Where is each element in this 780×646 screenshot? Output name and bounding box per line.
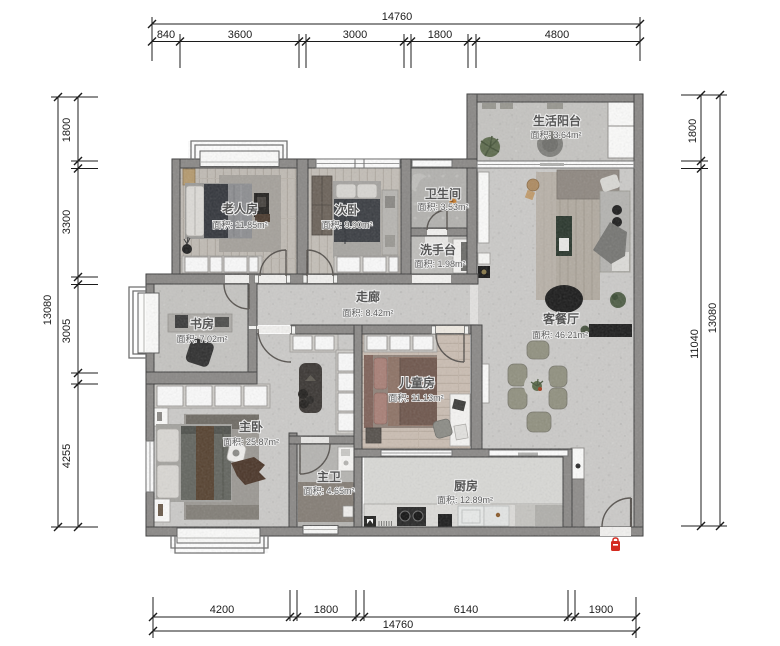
svg-text:13080: 13080 xyxy=(707,303,719,334)
svg-text:4800: 4800 xyxy=(545,29,569,41)
svg-text:3300: 3300 xyxy=(61,210,73,234)
svg-text:14760: 14760 xyxy=(383,619,414,631)
svg-text:4255: 4255 xyxy=(61,444,73,468)
svg-text:1800: 1800 xyxy=(314,604,338,616)
svg-text:3005: 3005 xyxy=(61,319,73,343)
svg-text:14760: 14760 xyxy=(382,11,413,23)
svg-text:4200: 4200 xyxy=(210,604,234,616)
svg-text:13080: 13080 xyxy=(42,295,54,326)
svg-text:840: 840 xyxy=(157,29,175,41)
svg-text:3000: 3000 xyxy=(343,29,367,41)
svg-text:3600: 3600 xyxy=(228,29,252,41)
svg-text:11040: 11040 xyxy=(689,329,701,359)
svg-text:1800: 1800 xyxy=(61,118,73,142)
svg-text:1800: 1800 xyxy=(428,29,452,41)
svg-text:6140: 6140 xyxy=(454,604,478,616)
svg-text:1800: 1800 xyxy=(687,119,699,143)
svg-text:1900: 1900 xyxy=(589,604,613,616)
